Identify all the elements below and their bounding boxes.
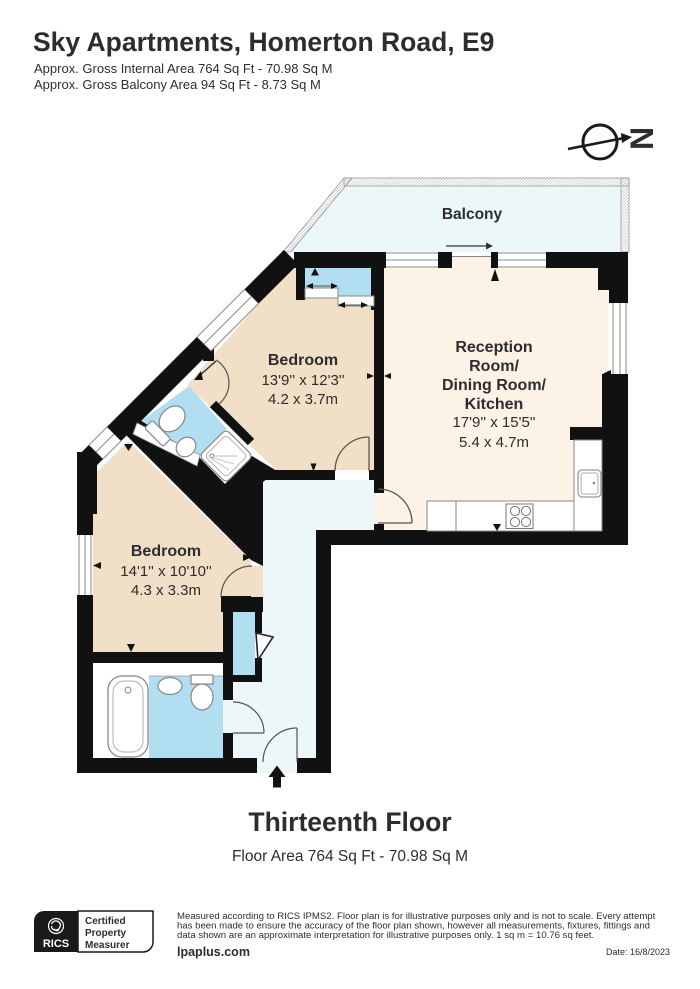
svg-text:13'9'' x 12'3'': 13'9'' x 12'3'': [261, 372, 344, 389]
svg-text:Reception: Reception: [455, 339, 532, 356]
svg-text:Room/: Room/: [469, 358, 519, 375]
svg-text:N: N: [624, 127, 660, 150]
svg-text:Bedroom: Bedroom: [268, 352, 338, 369]
svg-text:lpaplus.com: lpaplus.com: [177, 945, 250, 959]
svg-text:17'9'' x 15'5'': 17'9'' x 15'5'': [452, 414, 535, 431]
svg-text:Date: 16/8/2023: Date: 16/8/2023: [606, 947, 670, 957]
svg-text:data shown are an approximate: data shown are an approximate interpreta…: [177, 930, 594, 941]
svg-text:Certified: Certified: [85, 916, 126, 927]
svg-text:RICS: RICS: [43, 938, 69, 950]
svg-text:Bedroom: Bedroom: [131, 543, 201, 560]
svg-text:Property: Property: [85, 928, 127, 939]
svg-text:Approx. Gross Balcony Area 94: Approx. Gross Balcony Area 94 Sq Ft - 8.…: [34, 77, 321, 92]
svg-text:Thirteenth Floor: Thirteenth Floor: [248, 807, 451, 837]
svg-text:Measurer: Measurer: [85, 940, 130, 951]
svg-text:Sky Apartments, Homerton Road,: Sky Apartments, Homerton Road, E9: [33, 27, 494, 57]
svg-text:14'1'' x 10'10'': 14'1'' x 10'10'': [120, 563, 212, 580]
svg-text:Balcony: Balcony: [442, 206, 503, 223]
svg-text:Approx. Gross Internal Area 76: Approx. Gross Internal Area 764 Sq Ft - …: [34, 61, 332, 76]
svg-text:4.3 x 3.3m: 4.3 x 3.3m: [131, 582, 201, 599]
svg-text:4.2 x 3.7m: 4.2 x 3.7m: [268, 391, 338, 408]
svg-text:Dining Room/: Dining Room/: [442, 377, 547, 394]
svg-text:5.4 x 4.7m: 5.4 x 4.7m: [459, 434, 529, 451]
svg-text:Kitchen: Kitchen: [465, 396, 524, 413]
svg-text:Floor Area 764 Sq Ft - 70.98 S: Floor Area 764 Sq Ft - 70.98 Sq M: [232, 848, 468, 865]
